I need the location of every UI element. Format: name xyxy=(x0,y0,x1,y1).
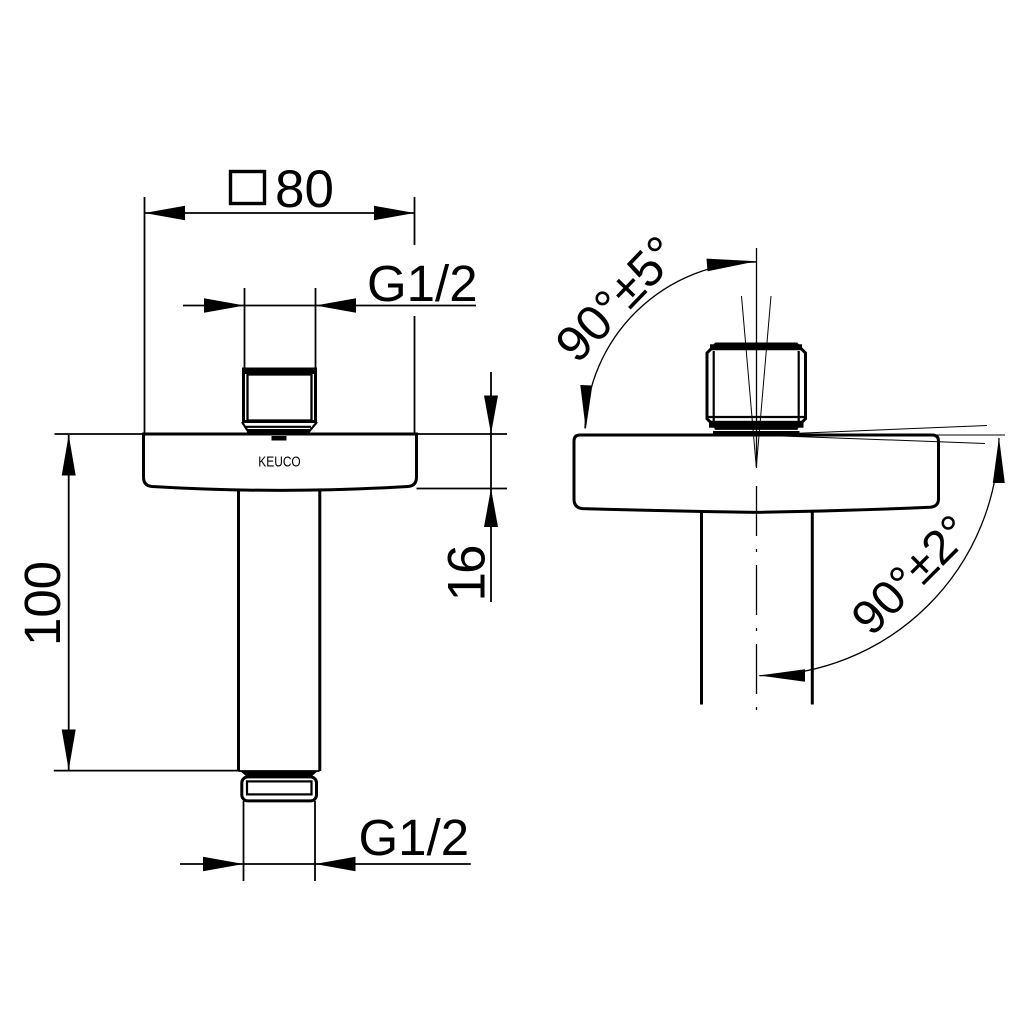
svg-text:KEUCO: KEUCO xyxy=(258,453,300,470)
svg-text:G1/2: G1/2 xyxy=(359,809,470,866)
svg-text:16: 16 xyxy=(438,546,497,601)
svg-text:G1/2: G1/2 xyxy=(367,255,478,312)
svg-text:100: 100 xyxy=(14,561,71,646)
svg-text:80: 80 xyxy=(275,160,334,219)
